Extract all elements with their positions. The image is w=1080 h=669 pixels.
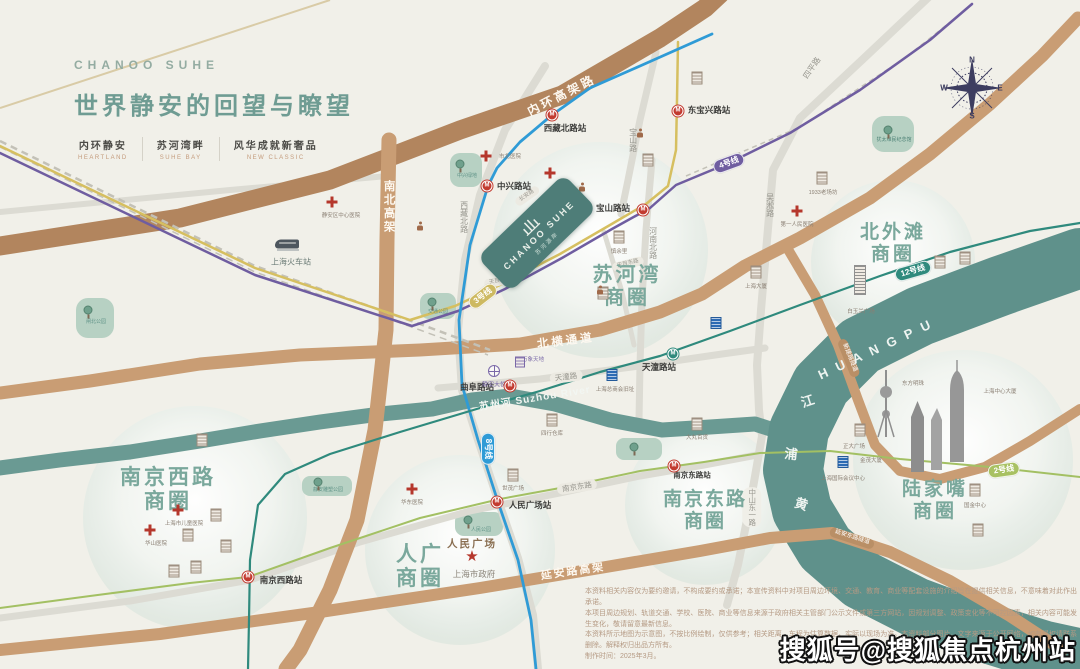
metro-badge: 3号线: [466, 280, 500, 311]
tagline-en: NEW CLASSIC: [234, 155, 318, 161]
street-name: 天潼路: [549, 369, 583, 384]
building-icon: [855, 424, 866, 437]
building-icon: [183, 529, 194, 542]
tagline-suhe-bay: 苏河湾畔 SUHE BAY: [142, 137, 219, 161]
district-name: 南京东路 商圈: [663, 489, 747, 533]
poi-name: 正大广场: [843, 444, 865, 450]
building-icon: [817, 172, 828, 185]
hospital-cross-icon: [481, 151, 492, 162]
poi-name: 大丸百货: [686, 435, 708, 441]
metro-station-icon: [669, 461, 680, 472]
government-star-icon: [464, 549, 480, 565]
poi-name: 上海总商会旧址: [596, 387, 635, 393]
school-icon: [636, 129, 644, 138]
building-icon: [935, 256, 946, 269]
school-icon: [416, 222, 424, 231]
park-name: 犹太难民纪念馆: [876, 138, 911, 144]
building-icon: [970, 484, 981, 497]
hospital-cross-icon: [327, 197, 338, 208]
brand-name: CHANOO SUHE: [74, 58, 404, 72]
hospital-cross-icon: [173, 505, 184, 516]
road-name: 北横通道: [536, 332, 595, 352]
road-name: 内环高架路: [525, 73, 598, 119]
school-icon: [596, 286, 604, 295]
park-tree-icon: [314, 478, 323, 487]
street-name: 西藏北路: [459, 201, 468, 233]
tagline-en: HEARTLAND: [78, 155, 128, 161]
poi-name: 华山医院: [145, 541, 167, 547]
station-name: 天潼路站: [642, 363, 676, 373]
district-name: 陆家嘴 商圈: [902, 479, 968, 523]
park-name: 交通公园: [428, 310, 448, 316]
poi-name: 白玉兰广场: [847, 309, 875, 315]
poi-name: 1933老场坊: [809, 190, 838, 196]
landmark-building-icon: [607, 369, 618, 381]
building-icon: [197, 434, 208, 447]
building-icon: [751, 266, 762, 279]
tower-building-icon: [854, 265, 866, 295]
tagline-heartland: 内环静安 HEARTLAND: [74, 137, 142, 161]
poi-name: 上海市儿童医院: [165, 521, 204, 527]
poster-title: 世界静安的回望与瞭望: [74, 86, 404, 121]
building-icon: [547, 414, 558, 427]
building-icon: [169, 565, 180, 578]
landmark-building-icon: [838, 456, 849, 468]
metro-badge: 2号线: [987, 461, 1021, 479]
ferris-wheel-icon: [488, 365, 500, 377]
hospital-cross-icon: [145, 525, 156, 536]
metro-station-icon: [673, 106, 684, 117]
railway-station-icon: [275, 240, 299, 249]
river-name: 黄: [793, 496, 810, 514]
tagline-en: SUHE BAY: [157, 155, 205, 161]
poi-name: 第一人民医院: [780, 222, 813, 228]
district-name: 南京西路 商圈: [120, 466, 216, 514]
metro-badge: 8号线: [481, 433, 495, 465]
building-icon: [508, 469, 519, 482]
disclaimer-line: 本资料相关内容仅为要约邀请，不构成要约或承诺；本宣传资料中对项目周边环境、交通、…: [585, 587, 1077, 609]
river-name: 江: [800, 393, 817, 411]
poi-name: 上海国际会议中心: [821, 476, 865, 482]
hospital-cross-icon: [792, 206, 803, 217]
street-name: 四平路: [801, 56, 822, 81]
park-name: 人民公园: [471, 528, 491, 534]
street-name: 河南北路: [648, 227, 657, 259]
poi-name: 上海火车站: [271, 257, 311, 266]
park-tree-icon: [84, 306, 93, 315]
poi-name: 万象天地: [522, 357, 544, 363]
building-icon: [643, 154, 654, 167]
metro-station-icon: [638, 205, 649, 216]
hospital-cross-icon: [545, 168, 556, 179]
metro-station-icon: [492, 497, 503, 508]
tagline-zh: 苏河湾畔: [157, 137, 205, 152]
river-name: 浦: [784, 447, 799, 463]
mall-building-icon: [515, 357, 525, 368]
compass-letter: N: [969, 55, 975, 64]
poi-name: 华东医院: [401, 500, 423, 506]
poi-name: 上海大厦: [745, 284, 767, 290]
poi-name: 四行仓库: [541, 431, 563, 437]
street-name: 吴淞路: [765, 193, 774, 217]
disclaimer-line: 本项目周边规划、轨道交通、学校、医院、商业等信息来源于政府相关主管部门公示文件或…: [585, 609, 1077, 631]
tagline-zh: 内环静安: [78, 137, 128, 152]
metro-station-icon: [668, 349, 679, 360]
building-icon: [973, 524, 984, 537]
station-name: 人民广场站: [509, 501, 552, 511]
metro-badge: 4号线: [711, 151, 746, 175]
station-name: 宝山路站: [596, 204, 630, 214]
sohu-watermark: 搜狐号@搜狐焦点杭州站: [780, 630, 1076, 667]
station-name: 东宝兴路站: [688, 106, 731, 116]
station-name: 西藏北路站: [544, 124, 587, 134]
park-tree-icon: [428, 298, 437, 307]
district-name: 人广 商圈: [396, 543, 444, 591]
compass-letter: W: [940, 83, 948, 92]
building-icon: [692, 418, 703, 431]
tagline-zh: 风华成就新奢品: [234, 137, 318, 152]
poi-name: 市北医院: [499, 154, 521, 160]
station-name: 南京东路站: [673, 472, 711, 481]
landmark-building-icon: [711, 317, 722, 329]
park-tree-icon: [456, 160, 465, 169]
building-icon: [692, 72, 703, 85]
park-tree-icon: [630, 443, 639, 452]
building-icon: [221, 540, 232, 553]
poi-name: 国金中心: [964, 503, 986, 509]
metro-station-icon: [482, 181, 493, 192]
river-name: H U A N G P U: [816, 317, 936, 383]
poi-name: 慎余里: [611, 249, 628, 255]
building-icon: [614, 231, 625, 244]
poi-name: 世茂广场: [502, 486, 524, 492]
station-name: 中兴路站: [497, 182, 531, 192]
park-tree-icon: [884, 126, 893, 135]
tunnel-name: 延安东路隧道: [829, 526, 876, 549]
street-name: 南京东路: [556, 478, 597, 495]
poster-header: CHANOO SUHE 世界静安的回望与瞭望 内环静安 HEARTLAND 苏河…: [74, 58, 404, 161]
map-poster: 内环高架路南北高架北横通道延安路高架延安东路隧道新建路隧道四平路吴淞路宝山路西藏…: [0, 0, 1080, 669]
park-tree-icon: [464, 516, 473, 525]
poi-name: 静安区中心医院: [322, 213, 361, 219]
compass-letter: E: [997, 83, 1002, 92]
park-name: 中兴绿地: [457, 174, 477, 180]
poi-name: 东方明珠: [902, 381, 924, 387]
header-taglines: 内环静安 HEARTLAND 苏河湾畔 SUHE BAY 风华成就新奢品 NEW…: [74, 137, 404, 161]
poi-name: 上海市政府: [453, 570, 496, 580]
building-icon: [211, 509, 222, 522]
compass-letter: S: [969, 111, 974, 120]
station-name: 南京西路站: [260, 576, 303, 586]
road-name: 延安路高架: [540, 561, 606, 583]
park-name: 闸北公园: [86, 320, 106, 326]
district-name: 北外滩 商圈: [860, 222, 926, 266]
building-icon: [960, 252, 971, 265]
metro-station-icon: [243, 572, 254, 583]
road-name: 南北高架: [381, 180, 394, 234]
metro-station-icon: [505, 381, 516, 392]
hospital-cross-icon: [407, 484, 418, 495]
building-icon: [191, 561, 202, 574]
tagline-new-classic: 风华成就新奢品 NEW CLASSIC: [219, 137, 332, 161]
metro-station-icon: [547, 110, 558, 121]
poi-name: 金茂大厦: [860, 458, 882, 464]
poi-name: 上海中心大厦: [983, 389, 1016, 395]
